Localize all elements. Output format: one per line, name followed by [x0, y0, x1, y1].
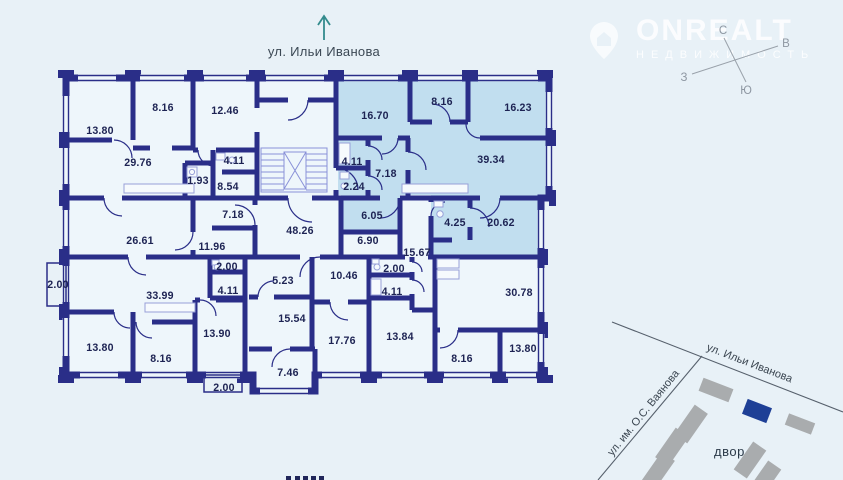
room-area-label: 8.16	[152, 102, 173, 114]
room-area-label-selected: 2.24	[343, 181, 364, 193]
room-area-label: 11.96	[199, 241, 226, 253]
cutoff-label-marks	[286, 476, 324, 480]
room-area-label: 13.80	[86, 342, 114, 354]
map-building	[699, 378, 734, 403]
room-area-label-selected: 16.70	[361, 110, 389, 122]
compass-axes	[692, 38, 778, 82]
room-area-label: 33.99	[146, 290, 174, 302]
room-area-label: 7.46	[277, 367, 298, 379]
room-area-label: 2.00	[47, 279, 68, 291]
map-selected-building[interactable]	[742, 399, 772, 423]
room-area-label: 2.00	[383, 263, 404, 275]
room-area-label: 4.11	[218, 285, 239, 297]
room-area-label: 2.00	[213, 382, 234, 394]
room-area-label-selected: 8.16	[431, 96, 452, 108]
room-area-label: 13.80	[86, 125, 114, 137]
room-area-label-selected: 20.62	[487, 217, 515, 229]
street-label-top: ул. Ильи Иванова	[268, 44, 381, 59]
room-area-label: 8.16	[451, 353, 472, 365]
room-area-label: 7.18	[222, 209, 243, 221]
top-street-direction: ул. Ильи Иванова	[268, 16, 381, 59]
up-arrow-icon	[318, 16, 330, 40]
room-area-label: 8.16	[150, 353, 171, 365]
room-area-label-selected: 4.25	[444, 217, 465, 229]
room-area-label: 1.93	[187, 175, 208, 187]
room-area-label: 13.90	[203, 328, 231, 340]
room-area-label: 4.11	[224, 155, 245, 167]
room-area-label: 10.46	[330, 270, 358, 282]
room-area-label-selected: 7.18	[375, 168, 396, 180]
room-area-label: 29.76	[124, 157, 152, 169]
room-area-label: 4.11	[382, 286, 403, 298]
room-area-label: 6.90	[357, 235, 378, 247]
compass-south: Ю	[740, 85, 752, 97]
room-area-label: 15.67	[403, 247, 431, 259]
map-courtyard-label: двор	[714, 444, 745, 459]
compass-north: С	[719, 25, 727, 37]
map-building	[785, 413, 815, 434]
floor-plan-page: ONREALT НЕДВИЖИМОСТЬ ул. Ильи Иванова	[0, 0, 843, 480]
room-area-label: 13.80	[509, 343, 537, 355]
compass: С В З Ю	[681, 25, 791, 97]
compass-west: З	[681, 72, 688, 84]
floor-plan-canvas: ул. Ильи Иванова	[0, 0, 843, 480]
room-area-label: 2.00	[216, 261, 237, 273]
room-area-label: 12.46	[211, 105, 239, 117]
room-area-label: 15.54	[278, 313, 306, 325]
room-area-label: 13.84	[386, 331, 414, 343]
room-area-label: 30.78	[505, 287, 533, 299]
room-area-label: 17.76	[328, 335, 356, 347]
room-area-label-selected: 39.34	[477, 154, 505, 166]
room-area-label-selected: 6.05	[361, 210, 382, 222]
room-area-label-selected: 16.23	[504, 102, 532, 114]
room-area-label: 26.61	[126, 235, 154, 247]
mini-map: ул. Ильи Иванова ул. им. О.С. Ваянова дв…	[598, 322, 843, 480]
room-area-label: 48.26	[286, 225, 314, 237]
room-area-label-selected: 4.11	[342, 156, 363, 168]
room-area-label: 8.54	[217, 181, 238, 193]
room-area-label: 5.23	[272, 275, 293, 287]
compass-east: В	[782, 38, 790, 50]
